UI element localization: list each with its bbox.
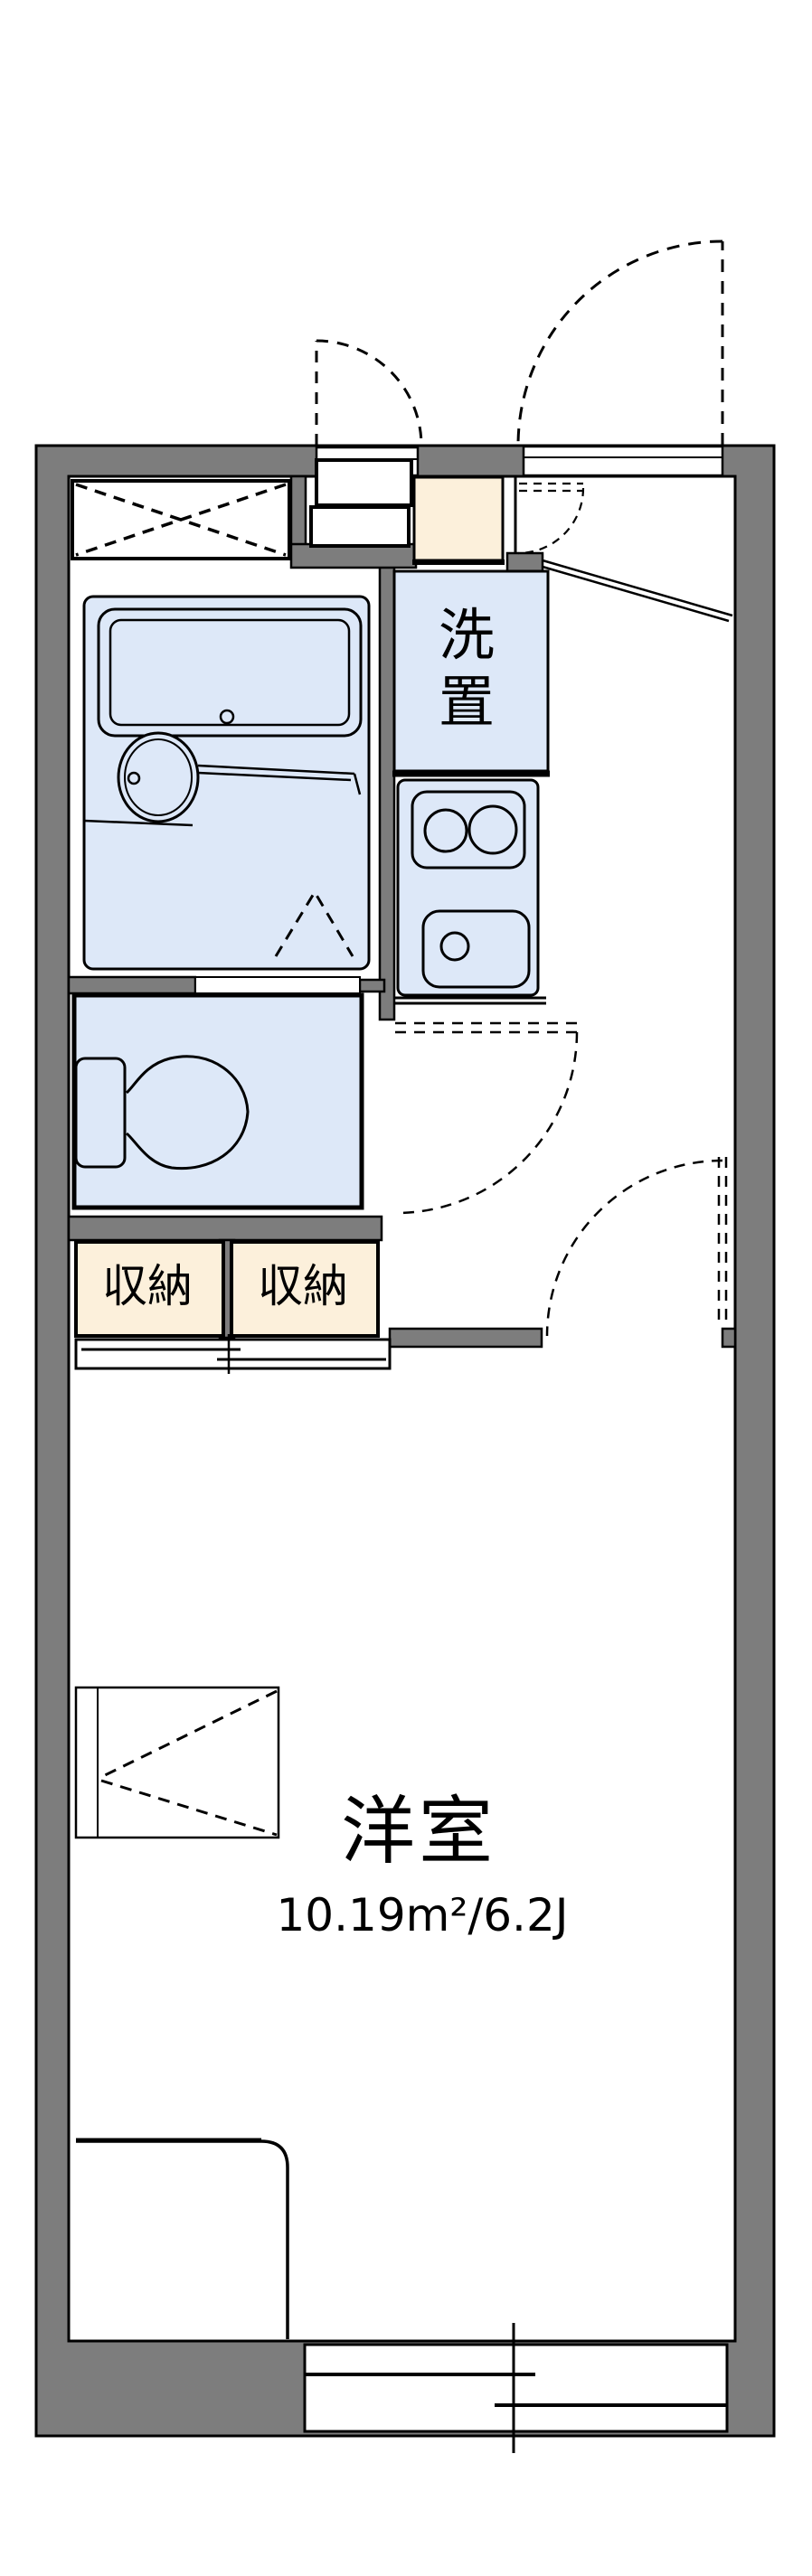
kitchen-counter [398, 780, 538, 995]
storage-label-left: 収納 [102, 1264, 193, 1309]
bed [76, 2140, 288, 2339]
upper-cabinet [72, 481, 289, 559]
wall-bath-toilet-left [69, 977, 195, 993]
washer-door-swing [518, 484, 583, 553]
wall-room-top-left [390, 1329, 542, 1347]
toilet-room [74, 977, 577, 1213]
wall-toilet-bottom [69, 1217, 382, 1240]
room-area-label: 10.19m²/6.2J [241, 1893, 603, 1938]
entrance-step-niche [311, 460, 411, 546]
bath-door-threshold [195, 977, 360, 993]
toilet-tank [76, 1058, 125, 1167]
wall-genkan-stub [507, 553, 543, 571]
wall-room-top-stub [722, 1329, 735, 1347]
entrance-door-opening [524, 447, 722, 475]
wall-center-vertical [380, 548, 394, 1020]
step-upper [316, 460, 411, 505]
bathtub [99, 609, 361, 736]
bay-window [76, 1688, 279, 1838]
wall-bath-toilet-right [360, 980, 384, 992]
storage-label-right: 収納 [258, 1264, 348, 1309]
service-door-swing [316, 341, 421, 446]
room-door-swing [547, 1157, 726, 1336]
washer-label: 洗置 [439, 602, 496, 737]
closet-sliding-doors [76, 1334, 390, 1374]
genkan-step-line [543, 560, 732, 621]
entrance-door-swing [518, 241, 722, 446]
washer-closet [412, 477, 583, 562]
wall-niche-left [291, 476, 306, 551]
step-lower [311, 507, 409, 546]
washbasin [118, 733, 198, 822]
floor-plan: 洗置 収納 収納 洋室 10.19m²/6.2J [0, 0, 812, 2576]
room-name-label: 洋室 [265, 1795, 572, 1869]
toilet-door-swing [395, 1023, 577, 1213]
kitchen-unit [394, 780, 546, 1003]
bathroom [84, 597, 369, 969]
